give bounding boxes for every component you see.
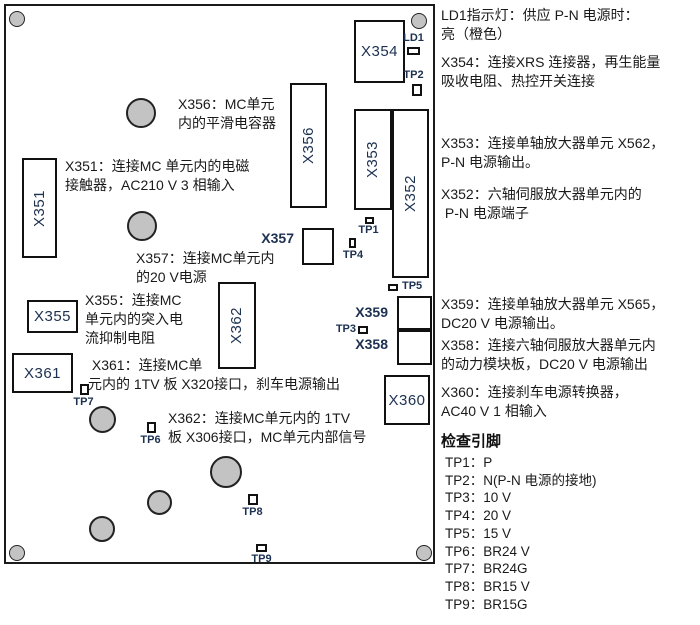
note-x361: X361：连接MC单 元内的 1TV 板 X320接口，刹车电源输出 <box>88 356 393 394</box>
check-pin-tp8: TP8：BR15 V <box>445 578 695 596</box>
check-pin-tp2: TP2：N(P-N 电源的接地) <box>445 472 695 490</box>
testpoint-tp5-marker <box>388 284 398 291</box>
screw-hole-top-left <box>9 11 25 27</box>
capacitor-pad-4 <box>210 456 242 488</box>
side-note-x353: X353：连接单轴放大器单元 X562， P-N 电源输出。 <box>441 134 699 172</box>
connector-x358 <box>397 330 432 365</box>
testpoint-tp6-label: TP6 <box>136 434 165 446</box>
check-pin-tp1: TP1：P <box>445 454 695 472</box>
connector-x359 <box>397 296 432 330</box>
check-pins-list: TP1：P TP2：N(P-N 电源的接地) TP3：10 V TP4：20 V… <box>445 454 695 613</box>
connector-x355: X355 <box>27 300 78 333</box>
testpoint-tp4-label: TP4 <box>339 249 367 261</box>
capacitor-pad-5 <box>147 490 172 515</box>
testpoint-tp8-marker <box>248 494 258 505</box>
testpoint-tp2-marker <box>412 84 422 96</box>
testpoint-tp6-marker <box>147 422 156 433</box>
testpoint-tp4-marker <box>349 238 356 248</box>
connector-x361-label: X361 <box>24 365 61 382</box>
testpoint-tp1-label: TP1 <box>354 224 383 236</box>
connector-x358-label: X358 <box>350 336 388 352</box>
testpoint-tp7-label: TP7 <box>69 396 98 408</box>
check-pin-tp7: TP7：BR24G <box>445 560 695 578</box>
connector-x353: X353 <box>354 109 392 210</box>
side-note-x358: X358：连接六轴伺服放大器单元内 的动力模块板，DC20 V 电源输出 <box>441 336 699 374</box>
connector-x351: X351 <box>22 158 57 258</box>
capacitor-pad-1 <box>126 98 156 128</box>
connector-x351-label: X351 <box>31 189 48 226</box>
connector-x354-label: X354 <box>361 43 398 60</box>
connector-x361: X361 <box>12 353 73 393</box>
connector-x352: X352 <box>392 109 429 278</box>
connector-x359-label: X359 <box>350 304 388 320</box>
connector-x356-label: X356 <box>300 127 317 164</box>
note-x356: X356：MC单元 内的平滑电容器 <box>178 95 296 133</box>
connector-x362-label: X362 <box>229 307 246 344</box>
connector-x357-label: X357 <box>248 230 294 246</box>
side-note-x360: X360：连接刹车电源转换器， AC40 V 1 相输入 <box>441 383 699 421</box>
screw-hole-top-right <box>411 13 427 29</box>
note-x351: X351：连接MC 单元内的电磁 接触器，AC210 V 3 相输入 <box>65 157 300 195</box>
check-pin-tp4: TP4：20 V <box>445 507 695 525</box>
note-x355: X355：连接MC 单元内的突入电 流抑制电阻 <box>85 291 200 348</box>
led-ld1-label: LD1 <box>399 32 428 44</box>
testpoint-tp3-label: TP3 <box>329 323 356 335</box>
capacitor-pad-3 <box>89 406 116 433</box>
board-connector-diagram: X354 X356 X351 X353 X352 X355 X361 X362 … <box>0 0 700 625</box>
check-pin-tp9: TP9：BR15G <box>445 596 695 614</box>
testpoint-tp9-label: TP9 <box>247 553 276 565</box>
testpoint-tp3-marker <box>358 326 368 334</box>
capacitor-pad-2 <box>127 211 157 241</box>
note-x362: X362：连接MC单元内的 1TV 板 X306接口，MC单元内部信号 <box>168 409 393 447</box>
testpoint-tp1-marker <box>365 217 374 224</box>
side-note-ld1: LD1指示灯：供应 P-N 电源时： 亮（橙色） <box>441 6 699 44</box>
connector-x352-label: X352 <box>402 175 419 212</box>
led-ld1-indicator <box>407 47 420 55</box>
check-pin-tp6: TP6：BR24 V <box>445 543 695 561</box>
check-pins-heading: 检查引脚 <box>441 430 501 451</box>
side-note-x354: X354：连接XRS 连接器，再生能量 吸收电阻、热控开关连接 <box>441 53 699 91</box>
connector-x357 <box>302 228 334 265</box>
check-pin-tp5: TP5：15 V <box>445 525 695 543</box>
capacitor-pad-6 <box>89 516 115 542</box>
connector-x353-label: X353 <box>365 141 382 178</box>
connector-x355-label: X355 <box>34 308 71 325</box>
testpoint-tp9-marker <box>256 544 267 552</box>
note-x357: X357：连接MC单元内 的20 V电源 <box>136 249 296 287</box>
side-note-x352: X352：六轴伺服放大器单元内的 P-N 电源端子 <box>441 185 699 223</box>
check-pin-tp3: TP3：10 V <box>445 489 695 507</box>
screw-hole-bottom-right <box>416 545 432 561</box>
connector-x354: X354 <box>354 20 405 83</box>
connector-x360-label: X360 <box>388 392 425 409</box>
testpoint-tp5-label: TP5 <box>402 280 434 292</box>
screw-hole-bottom-left <box>9 545 25 561</box>
side-note-x359: X359：连接单轴放大器单元 X565， DC20 V 电源输出。 <box>441 295 699 333</box>
testpoint-tp2-label: TP2 <box>399 69 428 81</box>
testpoint-tp8-label: TP8 <box>238 506 267 518</box>
